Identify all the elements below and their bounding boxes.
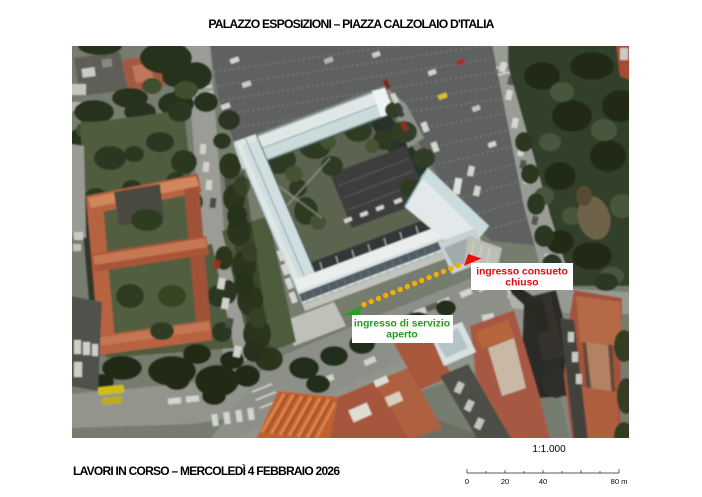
svg-text:aperto: aperto <box>386 330 417 341</box>
svg-text:ingresso consueto: ingresso consueto <box>476 267 568 278</box>
svg-text:20: 20 <box>501 477 509 486</box>
svg-text:80 m: 80 m <box>611 477 628 486</box>
svg-text:ingresso di servizio: ingresso di servizio <box>354 319 450 330</box>
svg-text:chiuso: chiuso <box>505 278 538 289</box>
svg-text:0: 0 <box>465 477 469 486</box>
svg-text:40: 40 <box>539 477 547 486</box>
